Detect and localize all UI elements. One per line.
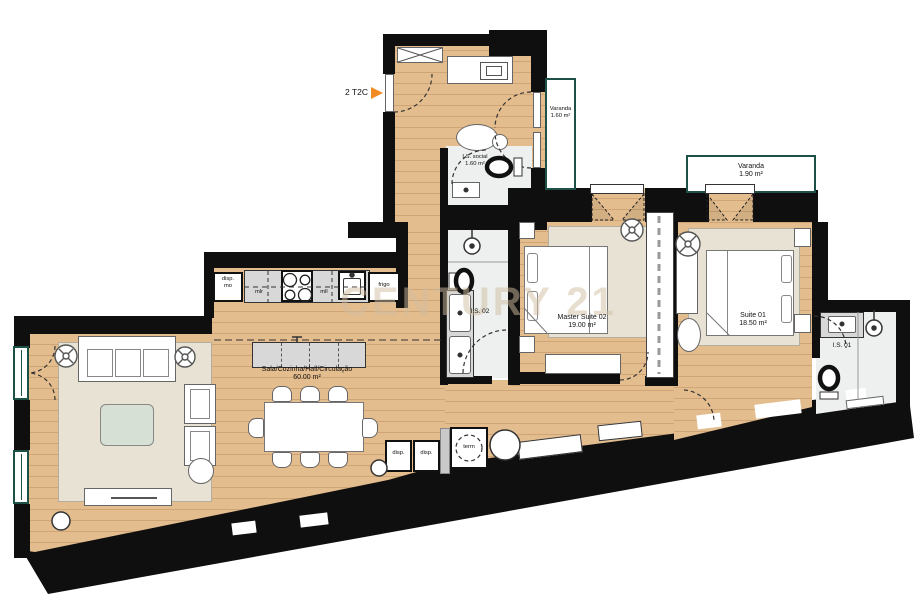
island-divider [281, 343, 282, 367]
washer-label: mlr [246, 289, 272, 296]
side-table [188, 458, 214, 484]
hall-pouf [456, 124, 498, 151]
band-window-cutout [299, 512, 328, 527]
sofa-cushion [87, 349, 113, 377]
living-label: Sala/Cozinha/Hall/Circulação60.00 m² [247, 366, 367, 383]
is-social-sink [452, 182, 480, 198]
dining-chair [272, 452, 292, 468]
hall-closet [397, 47, 443, 63]
tv-unit [111, 497, 157, 499]
entry-arrow-icon [371, 87, 383, 99]
pillow [527, 253, 538, 283]
band-window-cutout [696, 413, 722, 430]
suite01-balcony-door [705, 184, 755, 194]
coffee-table [100, 404, 154, 446]
wardrobe [646, 212, 674, 378]
dining-chair [248, 418, 264, 438]
sideboard-decor-inner [486, 66, 502, 76]
kitchen-sink-box [338, 271, 366, 300]
dining-chair [328, 386, 348, 402]
is01-label: I.S. 01 [818, 342, 866, 350]
suite01-desk [676, 250, 698, 314]
is-social-label: I.S. social1.60 m² [442, 154, 508, 168]
storage2-label: disp. [413, 450, 440, 457]
is02-label: I.S. 02 [454, 308, 506, 316]
suite01-chair [677, 318, 701, 352]
dining-chair [272, 386, 292, 402]
dining-table [264, 402, 364, 452]
island-divider [338, 343, 339, 367]
water-heater-label: term [452, 444, 486, 451]
master-suite-label: Master Suite 0219.00 m² [530, 314, 634, 331]
balcony-door-leaf [533, 92, 541, 128]
entry-door-leaf [385, 74, 394, 112]
balcony-door-leaf [533, 132, 541, 168]
dining-chair [328, 452, 348, 468]
is02-sink [449, 336, 471, 374]
kitchen-island [252, 342, 366, 368]
corridor-floor [396, 222, 448, 272]
armchair-cushion [190, 431, 210, 461]
master-balcony-door [590, 184, 644, 194]
sofa-cushion [143, 349, 169, 377]
living-window [13, 450, 29, 504]
dining-chair [362, 418, 378, 438]
pillar [440, 428, 450, 474]
unit-label: 2 T2C [330, 87, 368, 97]
hall-sideboard [447, 56, 513, 84]
island-divider [309, 343, 310, 367]
master-nightstand [519, 336, 535, 353]
suite01-label: Suite 0118.50 m² [703, 312, 803, 329]
sofa-cushion [115, 349, 141, 377]
sofa [78, 336, 176, 382]
floor-plan: Varanda1.60 m² Varanda1.90 m² [0, 0, 921, 616]
master-nightstand [519, 222, 535, 239]
armchair-cushion [190, 389, 210, 419]
fridge-label: frigo [368, 282, 400, 289]
storage1-label: disp. [385, 450, 412, 457]
hall-pouf-ball [492, 134, 508, 150]
dining-chair [300, 386, 320, 402]
kitchen-hob [281, 270, 313, 302]
living-window-door [13, 346, 29, 400]
dishwasher-label: mll [312, 289, 336, 296]
armchair [184, 384, 216, 424]
tv-console [84, 488, 172, 506]
balcony-small-label: Varanda1.60 m² [547, 106, 574, 120]
balcony-small: Varanda1.60 m² [545, 78, 576, 190]
band-window-cutout [231, 521, 256, 536]
kitchen-sink-basin [343, 278, 361, 295]
is01-sink [828, 316, 856, 333]
pillow [781, 255, 792, 283]
suite01-nightstand [794, 228, 811, 247]
dining-chair [300, 452, 320, 468]
master-bench [545, 354, 621, 374]
balcony-large-label: Varanda1.90 m² [688, 163, 814, 180]
pantry-label: disp.mo [213, 276, 243, 290]
